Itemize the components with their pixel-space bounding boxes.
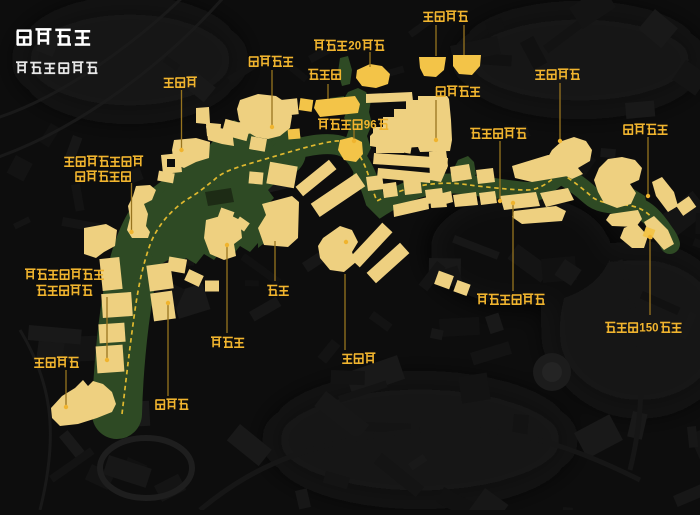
svg-text:150: 150	[639, 323, 658, 335]
svg-text:96: 96	[364, 120, 377, 132]
svg-text:20: 20	[348, 41, 361, 53]
